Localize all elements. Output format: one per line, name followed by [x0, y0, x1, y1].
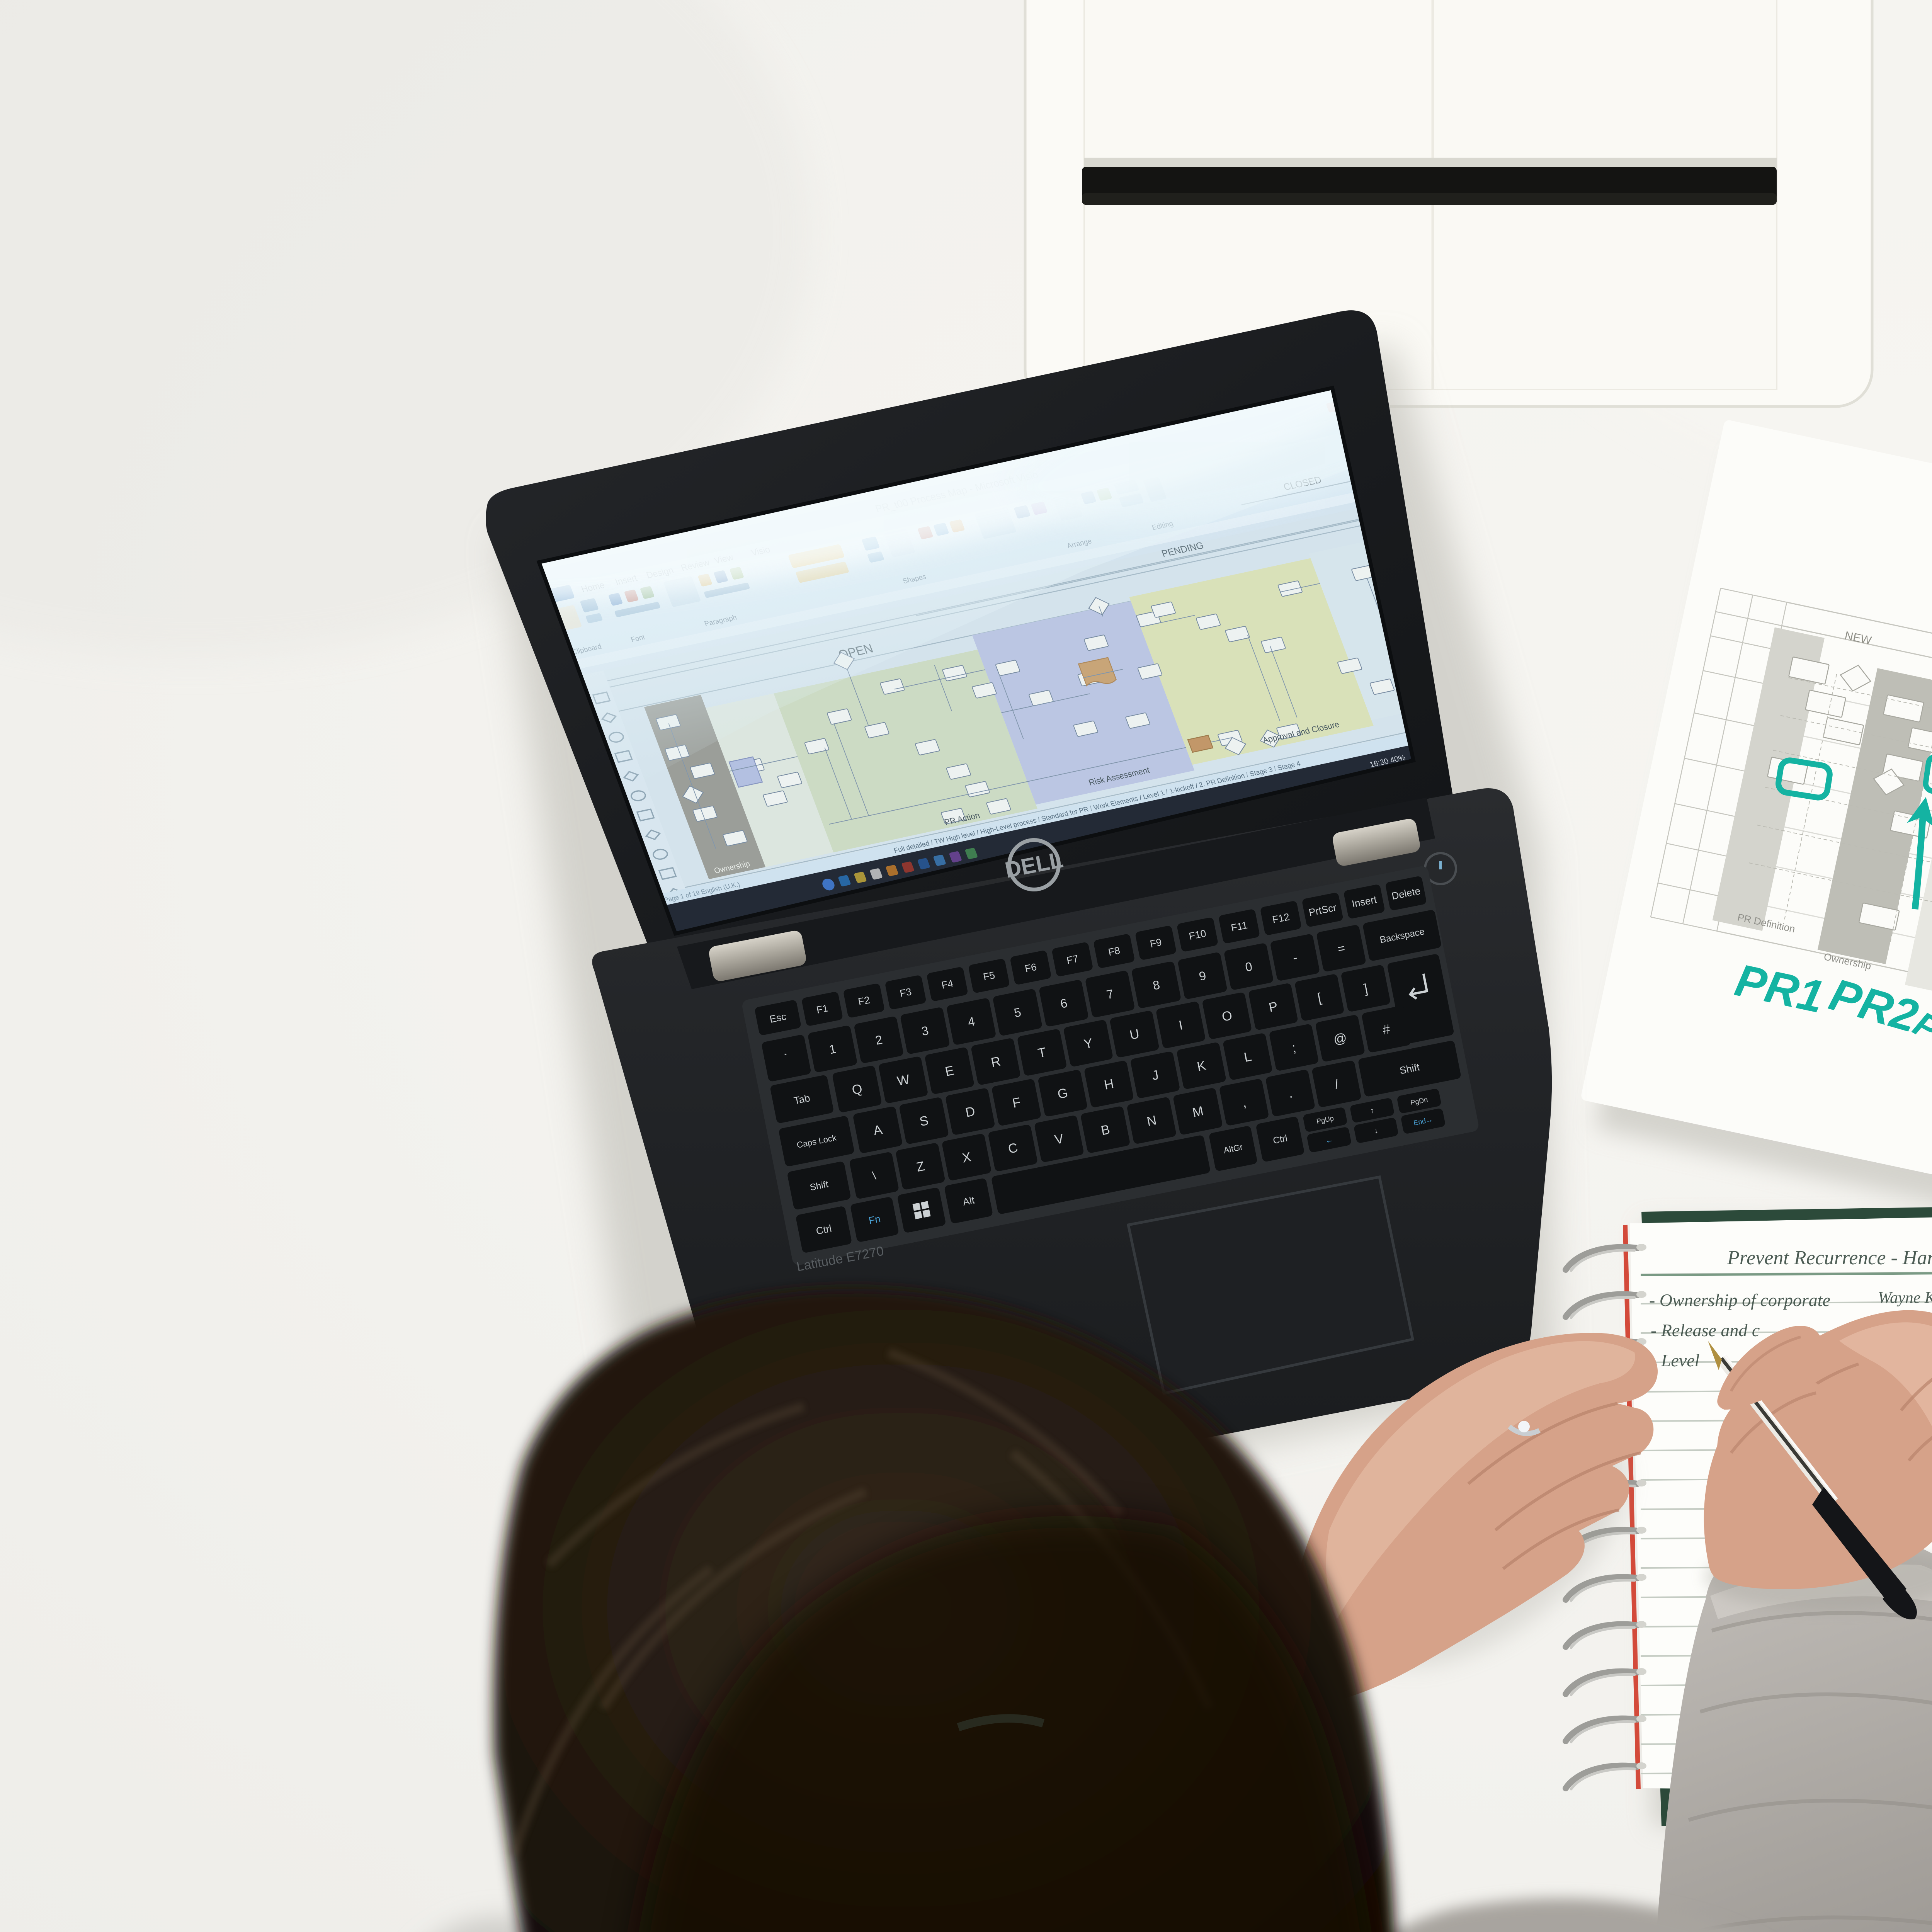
- svg-text:F8: F8: [1107, 944, 1121, 958]
- svg-text:Wayne Killick: Wayne Killick: [1878, 1289, 1932, 1307]
- svg-text:F7: F7: [1066, 952, 1080, 966]
- svg-text:F4: F4: [940, 977, 954, 991]
- svg-text:F9: F9: [1149, 936, 1163, 950]
- svg-text:F6: F6: [1024, 961, 1038, 975]
- svg-text:- Release and c: - Release and c: [1651, 1320, 1760, 1340]
- svg-text:F3: F3: [899, 986, 913, 999]
- svg-text:F5: F5: [982, 969, 996, 983]
- svg-text:@: @: [1332, 1030, 1348, 1047]
- svg-text:- Ownership of corporate: - Ownership of corporate: [1649, 1290, 1830, 1310]
- svg-text:F2: F2: [857, 994, 871, 1007]
- svg-text:- Level: - Level: [1651, 1350, 1699, 1370]
- svg-text:Fn: Fn: [868, 1213, 882, 1226]
- svg-text:Prevent Recurrence - Handover: Prevent Recurrence - Handover: [1727, 1247, 1932, 1269]
- svg-text:F1: F1: [815, 1002, 829, 1016]
